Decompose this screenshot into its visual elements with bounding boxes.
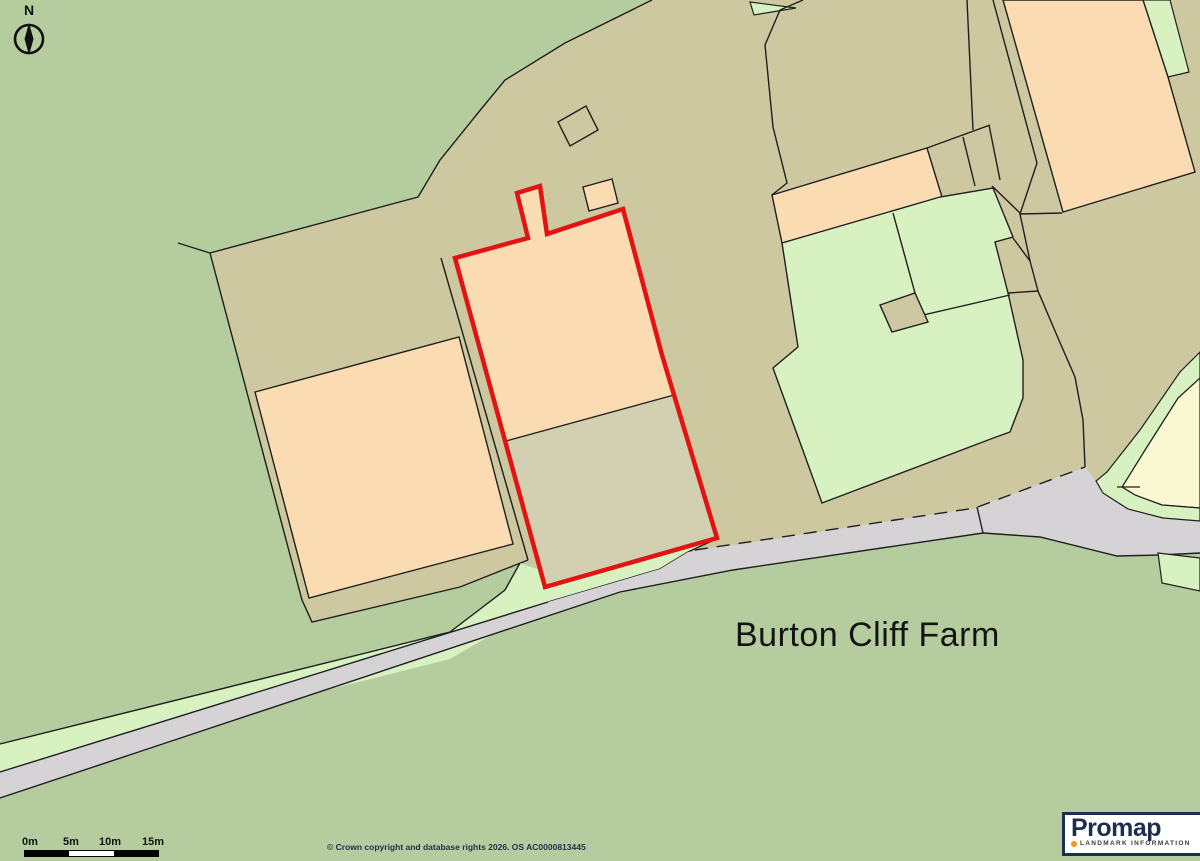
scale-label-15: 15m <box>142 836 164 848</box>
scale-segment-black <box>114 851 158 856</box>
compass-icon: N <box>10 2 54 64</box>
map-viewport: Burton Cliff Farm N 0m 5m 10m 15m © Crow… <box>0 0 1200 861</box>
scale-segment-black <box>25 851 69 856</box>
scale-bar-graphic <box>24 850 159 857</box>
promap-brand-text: Promap <box>1071 816 1199 840</box>
scale-segment-white <box>69 851 113 856</box>
scale-label-5: 5m <box>63 836 79 848</box>
landmark-text: LANDMARK INFORMATION <box>1080 840 1191 847</box>
scale-label-0: 0m <box>22 836 38 848</box>
landmark-row: LANDMARK INFORMATION <box>1071 840 1199 847</box>
map-canvas <box>0 0 1200 861</box>
scale-label-10: 10m <box>99 836 121 848</box>
place-label: Burton Cliff Farm <box>735 616 1000 655</box>
landmark-dot-icon <box>1071 841 1077 847</box>
scale-bar: 0m 5m 10m 15m <box>22 836 172 858</box>
copyright-notice: © Crown copyright and database rights 20… <box>327 842 586 852</box>
promap-logo: Promap LANDMARK INFORMATION <box>1062 812 1200 856</box>
compass-north-label: N <box>24 2 34 18</box>
